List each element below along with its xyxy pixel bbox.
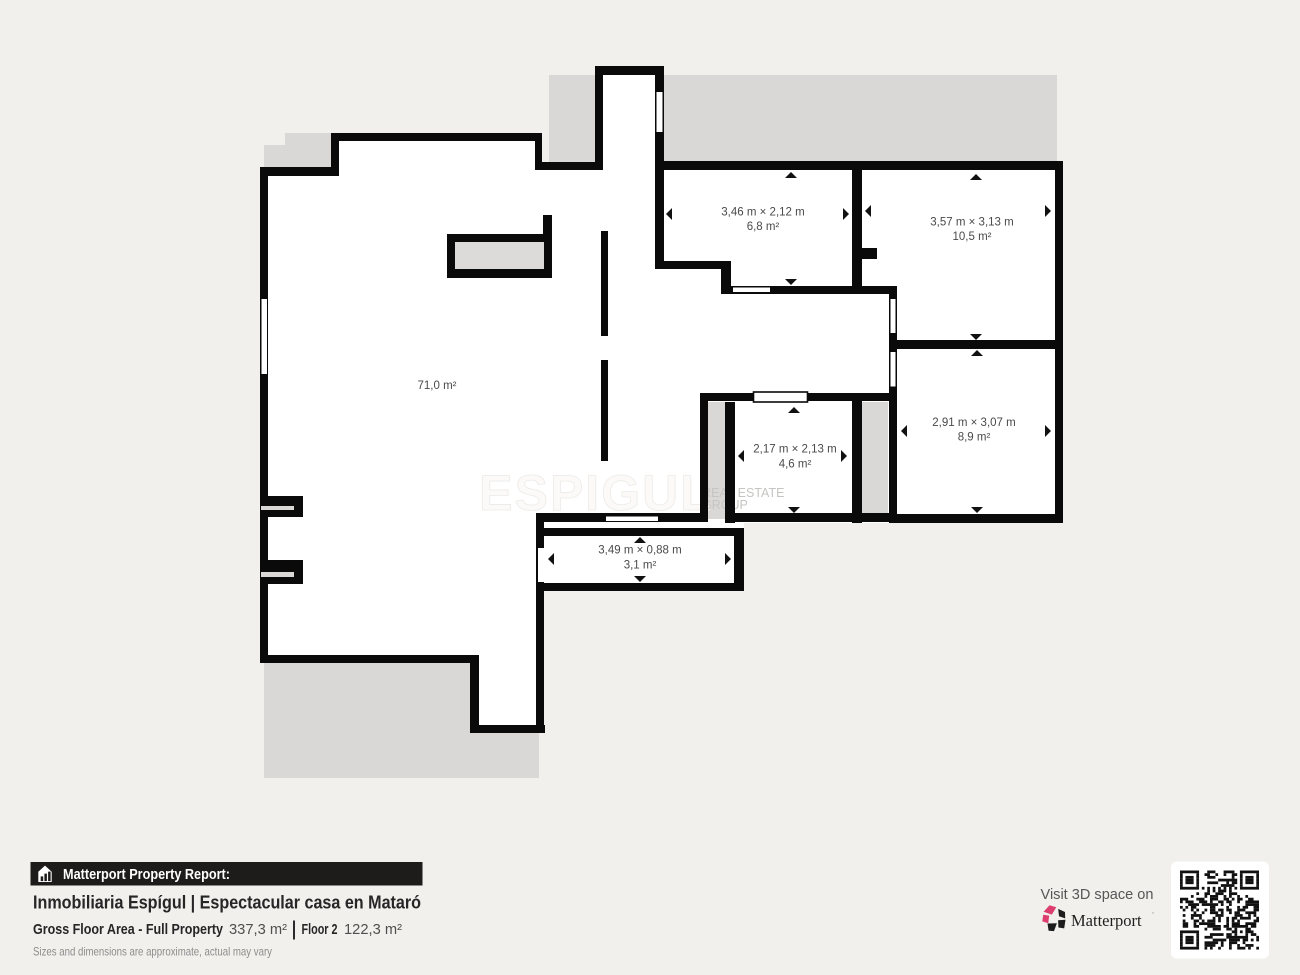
svg-text:2,91 m × 3,07 m: 2,91 m × 3,07 m (932, 417, 1015, 429)
svg-text:Matterport Property Report:: Matterport Property Report: (63, 867, 230, 883)
svg-text:8,9 m²: 8,9 m² (958, 432, 991, 444)
svg-text:10,5 m²: 10,5 m² (953, 231, 992, 243)
svg-text:2,17 m × 2,13 m: 2,17 m × 2,13 m (753, 444, 836, 456)
svg-text:3,1 m²: 3,1 m² (624, 560, 657, 572)
svg-text:Visit 3D space on: Visit 3D space on (1041, 886, 1154, 903)
svg-text:GROUP: GROUP (702, 498, 748, 512)
svg-text:6,8 m²: 6,8 m² (747, 221, 780, 233)
svg-text:Gross Floor Area - Full Proper: Gross Floor Area - Full Property (33, 922, 224, 938)
svg-text:Floor 2: Floor 2 (302, 922, 338, 938)
svg-text:337,3 m²: 337,3 m² (229, 922, 287, 938)
svg-text:71,0 m²: 71,0 m² (418, 380, 457, 392)
svg-text:3,49 m × 0,88 m: 3,49 m × 0,88 m (598, 545, 681, 557)
svg-text:4,6 m²: 4,6 m² (779, 459, 812, 471)
svg-text:Matterport: Matterport (1071, 911, 1142, 930)
svg-text:3,57 m × 3,13 m: 3,57 m × 3,13 m (930, 217, 1013, 229)
svg-text:3,46 m × 2,12 m: 3,46 m × 2,12 m (721, 207, 804, 219)
svg-text:122,3 m²: 122,3 m² (344, 922, 402, 938)
svg-text:ESPIGUL: ESPIGUL (479, 465, 712, 521)
svg-text:Sizes and dimensions are appro: Sizes and dimensions are approximate, ac… (33, 945, 272, 959)
svg-text:Inmobiliaria Espígul | Especta: Inmobiliaria Espígul | Espectacular casa… (33, 892, 421, 913)
svg-text:´: ´ (1152, 913, 1154, 920)
